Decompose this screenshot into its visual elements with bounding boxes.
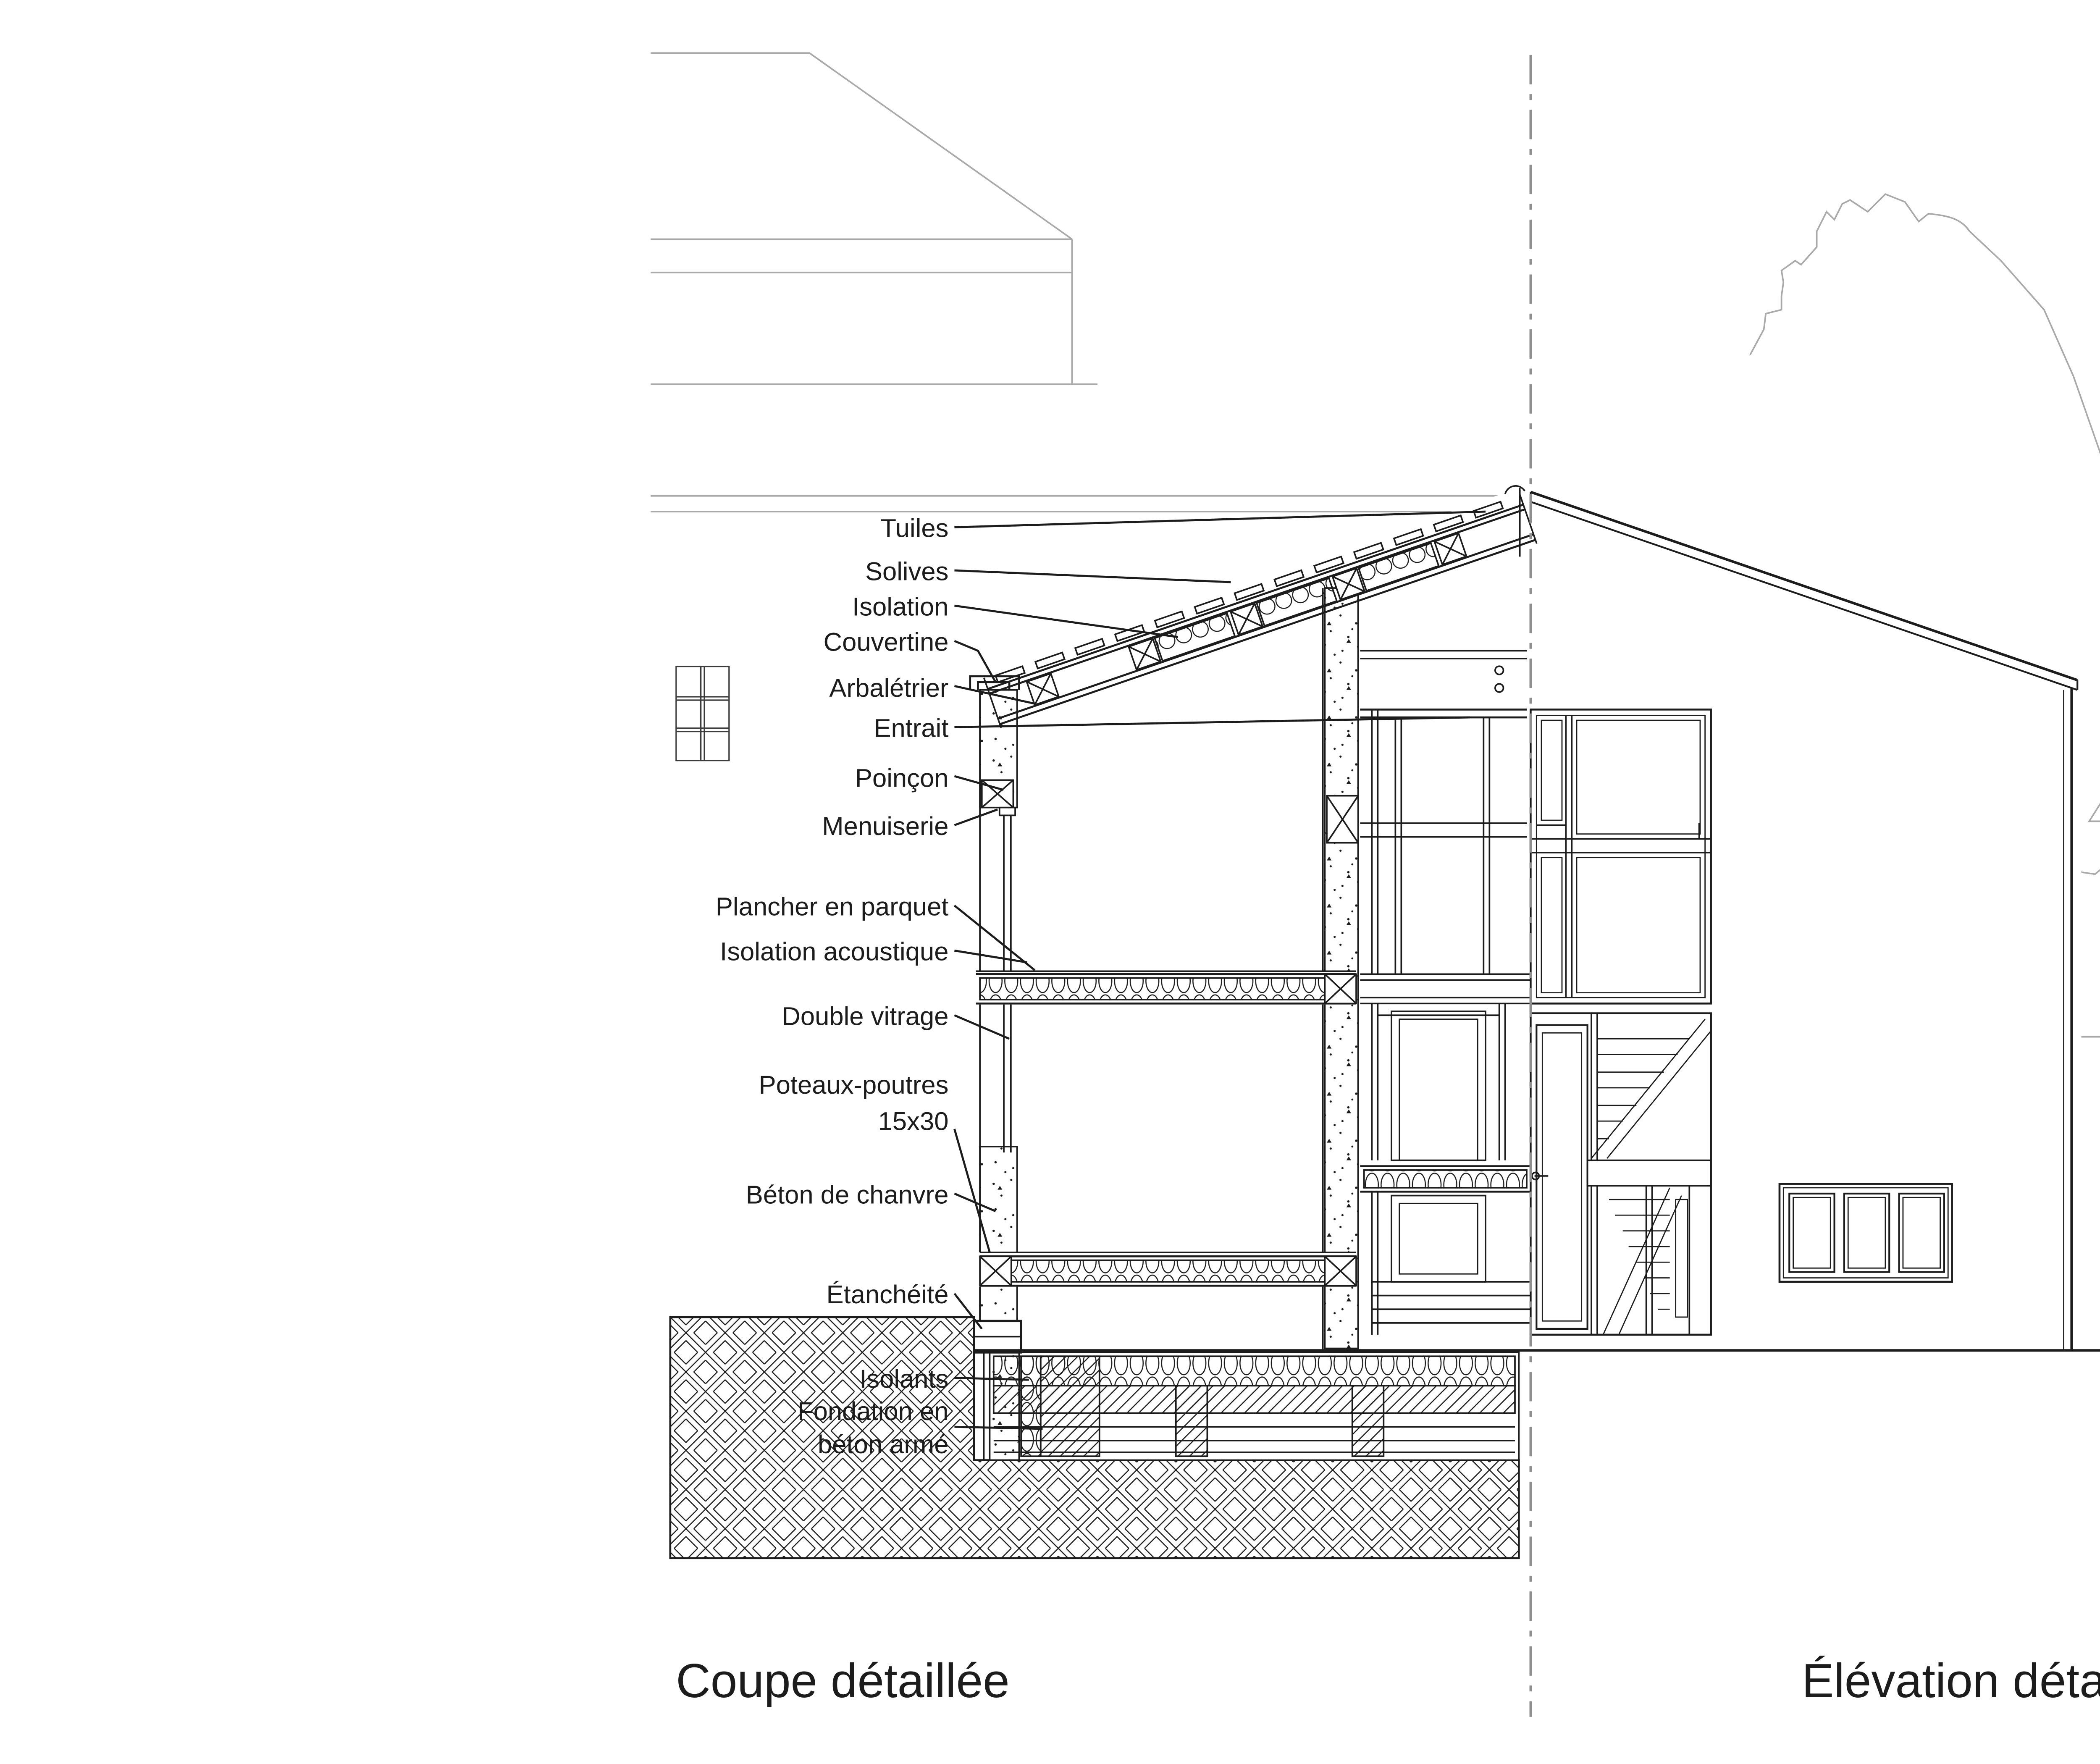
middle-column: [1323, 580, 1358, 1350]
ground-floor-slab: [976, 1252, 1356, 1287]
annotation-label-fondation: Fondation en: [798, 1397, 949, 1426]
timber-cross-box: [1325, 974, 1356, 1003]
acoustic-insulation: [980, 978, 1325, 1000]
elevation-title: Élévation détaillée façade: [1802, 1654, 2100, 1708]
annotation-label-poteaux-poutres-2: 15x30: [878, 1107, 949, 1136]
annotation-label-poteaux-poutres: Poteaux-poutres: [759, 1071, 949, 1100]
foundation: [984, 1352, 1519, 1460]
terrace-floor-band: [1360, 1166, 1530, 1192]
annotation-label-plancher: Plancher en parquet: [716, 892, 949, 921]
background-wall-lines-left: [651, 496, 1501, 512]
timber-cross-box: [1325, 1256, 1356, 1286]
isolants-strip: [1021, 1356, 1041, 1456]
drawing-sheet: Tuiles Solives Isolation Couvertine Arba…: [0, 0, 2100, 1764]
timber-cross-box: [1327, 796, 1358, 843]
wall-footing-speckle: [984, 1352, 1019, 1460]
fondation-beton-arme-block: [1041, 1356, 1100, 1456]
annotation-label-solives: Solives: [865, 557, 949, 586]
leader-solives: [954, 570, 1231, 582]
architectural-drawing: Tuiles Solives Isolation Couvertine Arba…: [0, 0, 2100, 1764]
foundation-pier: [1176, 1386, 1207, 1456]
building-masks: [974, 488, 2081, 1350]
section-title: Coupe détaillée: [676, 1654, 1009, 1708]
annotation-label-isolation-acoustique: Isolation acoustique: [720, 937, 948, 966]
neighbor-building-left: [651, 53, 1097, 384]
annotation-label-couvertine: Couvertine: [824, 627, 949, 656]
annotation-label-double-vitrage: Double vitrage: [782, 1002, 948, 1031]
annotation-label-isolants: Isolants: [859, 1365, 948, 1394]
neighbor-window: [676, 667, 729, 761]
annotation-label-isolation: Isolation: [852, 592, 948, 621]
annotation-label-beton-de-chanvre: Béton de chanvre: [746, 1180, 949, 1209]
hemp-concrete-wall: [980, 1147, 1017, 1321]
annotation-label-poincon: Poinçon: [855, 764, 949, 793]
annotation-label-menuiserie: Menuiserie: [822, 812, 948, 841]
annotation-label-tuiles: Tuiles: [880, 514, 948, 543]
intermediate-floor: [976, 971, 1356, 1004]
annotation-label-etancheite: Étanchéité: [826, 1280, 948, 1309]
staircase-landing: [1588, 1160, 1711, 1186]
leader-tuiles: [954, 512, 1486, 527]
timber-cross-box: [980, 1256, 1011, 1286]
annotation-label-fondation-2: béton armé: [818, 1430, 948, 1459]
foundation-pier: [1352, 1386, 1384, 1456]
annotation-label-arbaletrier: Arbalétrier: [829, 674, 948, 703]
annotation-label-entrait: Entrait: [874, 714, 948, 743]
